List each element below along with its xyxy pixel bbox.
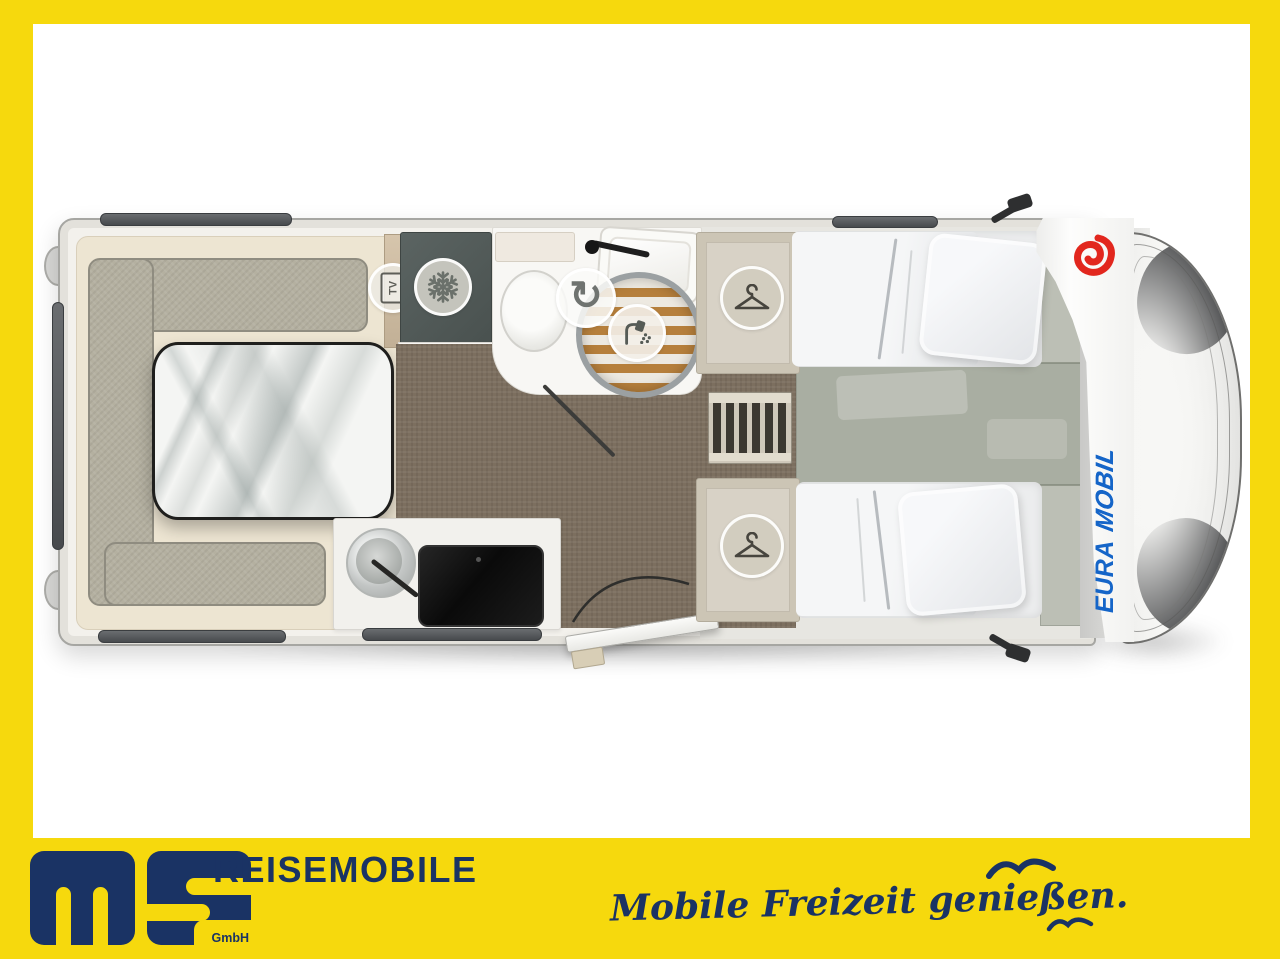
hanger-badge-rear (720, 266, 784, 330)
shower-icon (620, 316, 654, 350)
roof-rail-bottom-mid (362, 628, 542, 641)
tv-label: TV (387, 281, 399, 295)
gas-hob (418, 545, 544, 627)
mirror-top (984, 194, 1034, 228)
seagull-icon-small (1046, 912, 1094, 936)
lounge-cushion-bottom (104, 542, 326, 606)
slogan: Mobile Freizeit genießen. (610, 876, 1041, 929)
brand-secondary: MOBIL (1091, 446, 1120, 534)
rear-bumper (52, 302, 64, 550)
ms-logo-suffix: GmbH (212, 931, 250, 945)
advert-image: TV ↻ (0, 0, 1280, 959)
roof-rail-top-left (100, 213, 292, 226)
seagull-icon-large (985, 850, 1057, 886)
bed-steps (708, 392, 792, 464)
fridge-badge (414, 258, 472, 316)
garage-overlay-center (796, 362, 1094, 486)
basin-faucet-head (585, 240, 599, 254)
hanger-icon (733, 284, 771, 312)
shower-badge (608, 304, 666, 362)
dinette-table (152, 342, 394, 520)
hanger-badge-front (720, 514, 784, 578)
brand-primary: EURA (1091, 540, 1119, 613)
swivel-badge: ↻ (556, 268, 616, 328)
bed-front-pillow (897, 483, 1027, 617)
mirror-bottom (982, 630, 1032, 664)
door-swing-arc (570, 556, 692, 626)
dealer-name: REISEMOBILE (213, 849, 478, 891)
brand-lettering: EURAMOBIL (1091, 383, 1120, 613)
roof-rail-bottom-left (98, 630, 286, 643)
entry-step (571, 647, 605, 670)
swivel-icon: ↻ (569, 276, 603, 316)
bathroom-counter (495, 232, 575, 262)
hanger-icon (733, 532, 771, 560)
footer-banner: GmbH REISEMOBILE Mobile Freizeit genieße… (0, 838, 1280, 959)
bed-rear-pillow (918, 232, 1048, 366)
floorplan: TV ↻ (0, 0, 1280, 959)
eura-mobil-logo-icon (1068, 232, 1118, 288)
ms-logo-m (30, 851, 135, 945)
snowflake-icon (426, 270, 460, 304)
toilet (500, 270, 568, 352)
roof-rail-top-right (832, 216, 938, 228)
